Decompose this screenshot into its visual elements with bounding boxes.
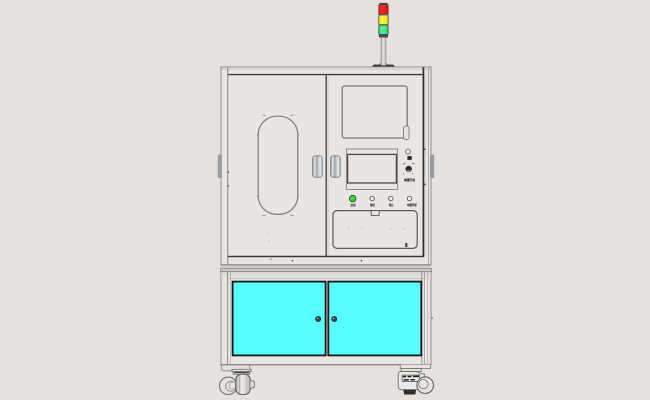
svg-text:电源异常: 电源异常 <box>407 203 417 207</box>
svg-text:停止: 停止 <box>388 203 394 207</box>
svg-text:启动: 启动 <box>351 203 356 207</box>
svg-text:复位: 复位 <box>369 203 375 207</box>
svg-text:电源开关: 电源开关 <box>404 177 416 182</box>
